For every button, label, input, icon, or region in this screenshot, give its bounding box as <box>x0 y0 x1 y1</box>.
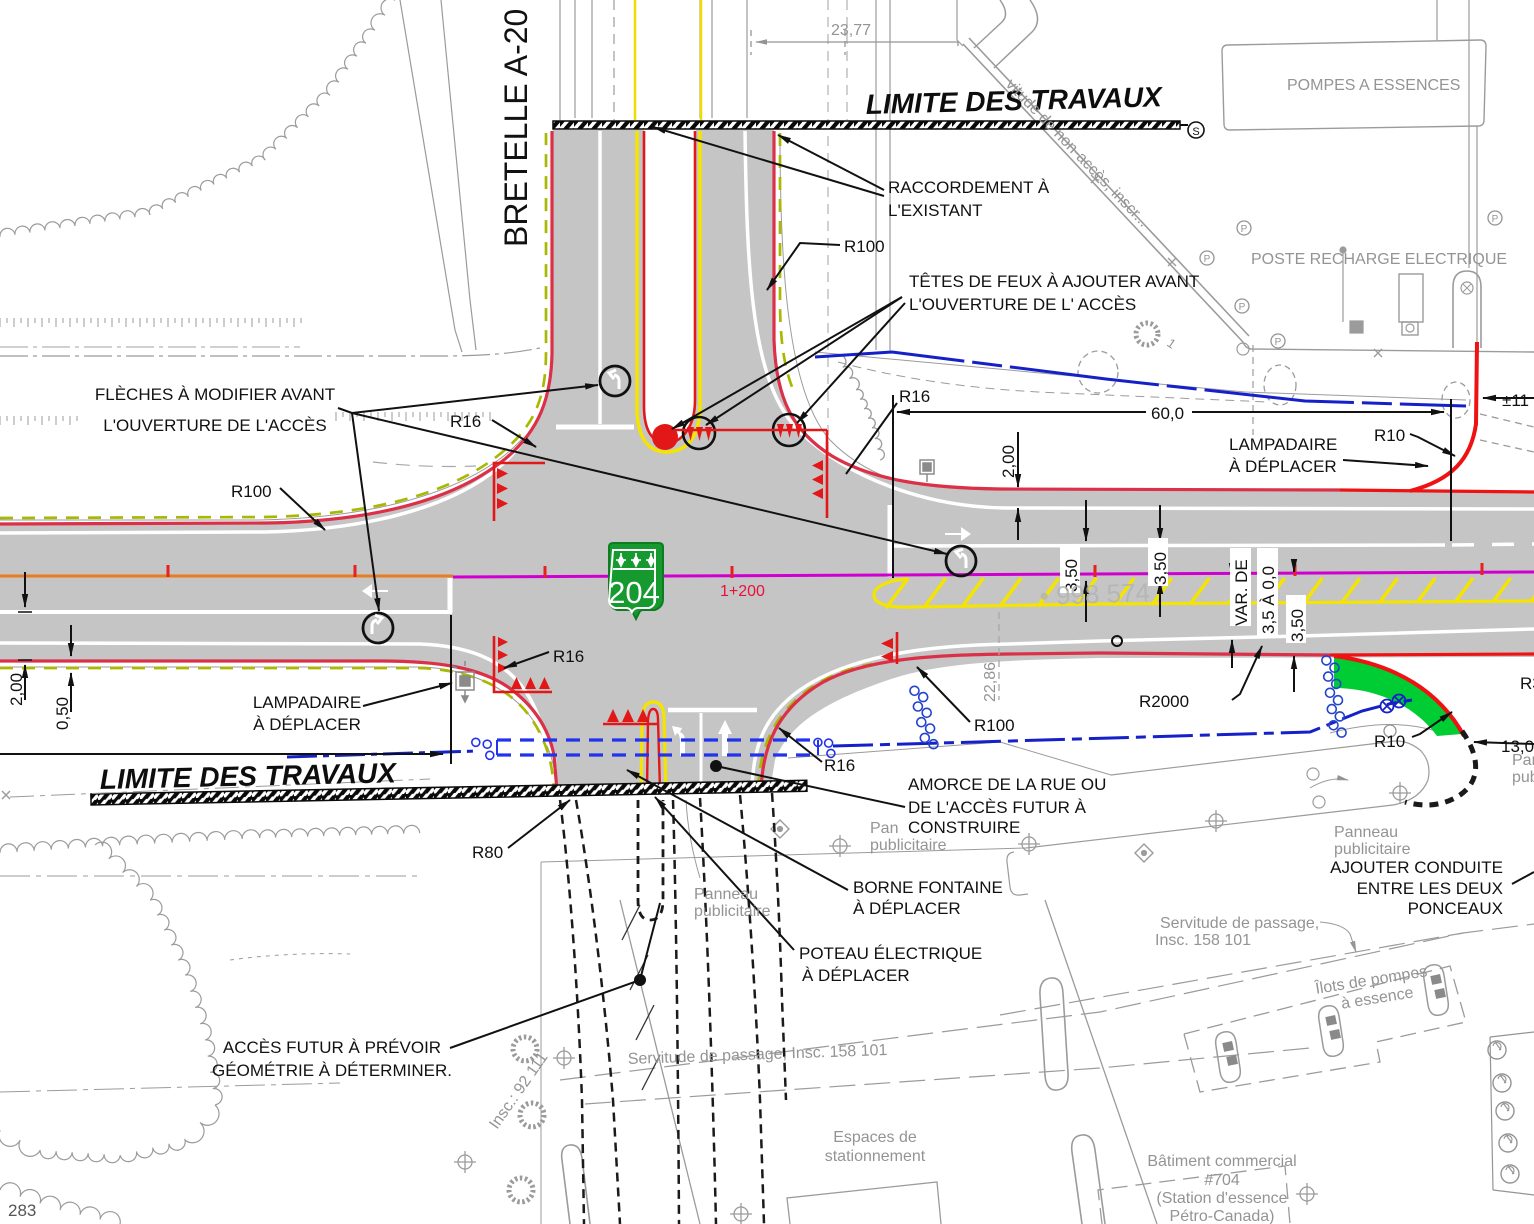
svg-text:0,50: 0,50 <box>53 697 72 730</box>
svg-text:R10: R10 <box>1374 732 1405 751</box>
svg-text:±11: ±11 <box>1502 391 1529 410</box>
svg-text:Espaces de: Espaces de <box>833 1129 917 1146</box>
svg-text:• 998 574: • 998 574 <box>1039 577 1150 611</box>
svg-text:POTEAU ÉLECTRIQUE: POTEAU ÉLECTRIQUE <box>799 944 982 963</box>
svg-text:L'OUVERTURE DE L' ACCÈS: L'OUVERTURE DE L' ACCÈS <box>909 295 1136 314</box>
svg-text:publicitaire: publicitaire <box>870 837 947 854</box>
svg-text:ACCÈS FUTUR À PRÉVOIR: ACCÈS FUTUR À PRÉVOIR <box>223 1038 441 1057</box>
svg-text:LAMPADAIRE: LAMPADAIRE <box>253 693 361 712</box>
svg-text:Pan: Pan <box>870 820 898 837</box>
svg-text:AMORCE DE LA RUE OU: AMORCE DE LA RUE OU <box>908 775 1106 794</box>
svg-text:stationnement: stationnement <box>825 1148 926 1165</box>
svg-text:R16: R16 <box>824 756 855 775</box>
svg-text:R16: R16 <box>450 412 481 431</box>
svg-text:Panneau: Panneau <box>1334 824 1398 841</box>
svg-text:P: P <box>1275 337 1282 348</box>
svg-text:R2000: R2000 <box>1139 692 1189 711</box>
svg-text:À DÉPLACER: À DÉPLACER <box>802 966 910 985</box>
svg-text:22,86: 22,86 <box>982 662 999 702</box>
svg-text:Bâtiment commercial: Bâtiment commercial <box>1147 1153 1296 1170</box>
svg-text:PONCEAUX: PONCEAUX <box>1408 899 1503 918</box>
svg-text:283: 283 <box>8 1201 36 1220</box>
svg-text:P: P <box>1204 254 1211 265</box>
svg-text:1+200: 1+200 <box>720 583 765 600</box>
svg-text:publicitaire: publicitaire <box>1334 841 1411 858</box>
svg-text:P: P <box>1241 224 1248 235</box>
svg-text:R100: R100 <box>231 482 272 501</box>
svg-text:FLÈCHES À MODIFIER AVANT: FLÈCHES À MODIFIER AVANT <box>95 385 335 404</box>
svg-text:P: P <box>1239 302 1246 313</box>
svg-text:POMPES A ESSENCES: POMPES A ESSENCES <box>1287 77 1460 94</box>
svg-text:L'OUVERTURE DE L'ACCÈS: L'OUVERTURE DE L'ACCÈS <box>103 416 326 435</box>
svg-text:3,50: 3,50 <box>1288 609 1307 642</box>
svg-text:204: 204 <box>608 575 660 610</box>
svg-text:RACCORDEMENT À: RACCORDEMENT À <box>888 178 1050 197</box>
svg-text:(Station d'essence: (Station d'essence <box>1156 1190 1287 1207</box>
svg-text:À DÉPLACER: À DÉPLACER <box>1229 457 1337 476</box>
svg-text:R80: R80 <box>472 843 503 862</box>
svg-text:VAR. DE: VAR. DE <box>1232 559 1251 626</box>
svg-text:Insc. 158 101: Insc. 158 101 <box>1155 932 1251 949</box>
svg-text:À DÉPLACER: À DÉPLACER <box>853 899 961 918</box>
svg-text:R10: R10 <box>1374 426 1405 445</box>
svg-text:GÉOMÉTRIE À DÉTERMINER.: GÉOMÉTRIE À DÉTERMINER. <box>212 1061 452 1080</box>
svg-text:2,00: 2,00 <box>7 673 26 706</box>
svg-text:P: P <box>1492 214 1499 225</box>
svg-text:R100: R100 <box>844 237 885 256</box>
svg-text:BRETELLE A-20 DIR: BRETELLE A-20 DIR <box>498 0 534 247</box>
svg-text:TÊTES DE FEUX À AJOUTER AVANT: TÊTES DE FEUX À AJOUTER AVANT <box>909 272 1199 291</box>
svg-text:60,0: 60,0 <box>1151 404 1184 423</box>
svg-text:BORNE FONTAINE: BORNE FONTAINE <box>853 878 1003 897</box>
svg-text:publicitaire: publicitaire <box>694 903 771 920</box>
svg-text:À DÉPLACER: À DÉPLACER <box>253 715 361 734</box>
svg-text:R16: R16 <box>899 387 930 406</box>
svg-text:R3: R3 <box>1520 674 1534 693</box>
svg-text:3,50: 3,50 <box>1151 552 1170 585</box>
svg-text:#704: #704 <box>1204 1172 1240 1189</box>
svg-text:pub: pub <box>1512 769 1534 786</box>
svg-text:DE L'ACCÈS FUTUR À: DE L'ACCÈS FUTUR À <box>908 798 1087 817</box>
svg-text:S: S <box>1192 126 1199 138</box>
svg-text:POSTE RECHARGE ELECTRIQUE: POSTE RECHARGE ELECTRIQUE <box>1251 251 1507 268</box>
svg-text:CONSTRUIRE: CONSTRUIRE <box>908 818 1020 837</box>
svg-text:ENTRE LES DEUX: ENTRE LES DEUX <box>1357 879 1503 898</box>
svg-text:L'EXISTANT: L'EXISTANT <box>888 201 983 220</box>
svg-text:Panneau: Panneau <box>694 886 758 903</box>
svg-text:R100: R100 <box>974 716 1015 735</box>
svg-text:LAMPADAIRE: LAMPADAIRE <box>1229 435 1337 454</box>
svg-text:2,00: 2,00 <box>999 445 1018 478</box>
svg-text:Pan: Pan <box>1512 752 1534 769</box>
svg-text:Servitude de passage,: Servitude de passage, <box>1160 915 1319 932</box>
svg-text:AJOUTER CONDUITE: AJOUTER CONDUITE <box>1330 858 1503 877</box>
svg-text:23,77: 23,77 <box>831 22 871 39</box>
svg-text:3,5 À 0,0: 3,5 À 0,0 <box>1259 566 1278 634</box>
svg-text:Pétro-Canada): Pétro-Canada) <box>1170 1208 1275 1224</box>
svg-text:R16: R16 <box>553 647 584 666</box>
